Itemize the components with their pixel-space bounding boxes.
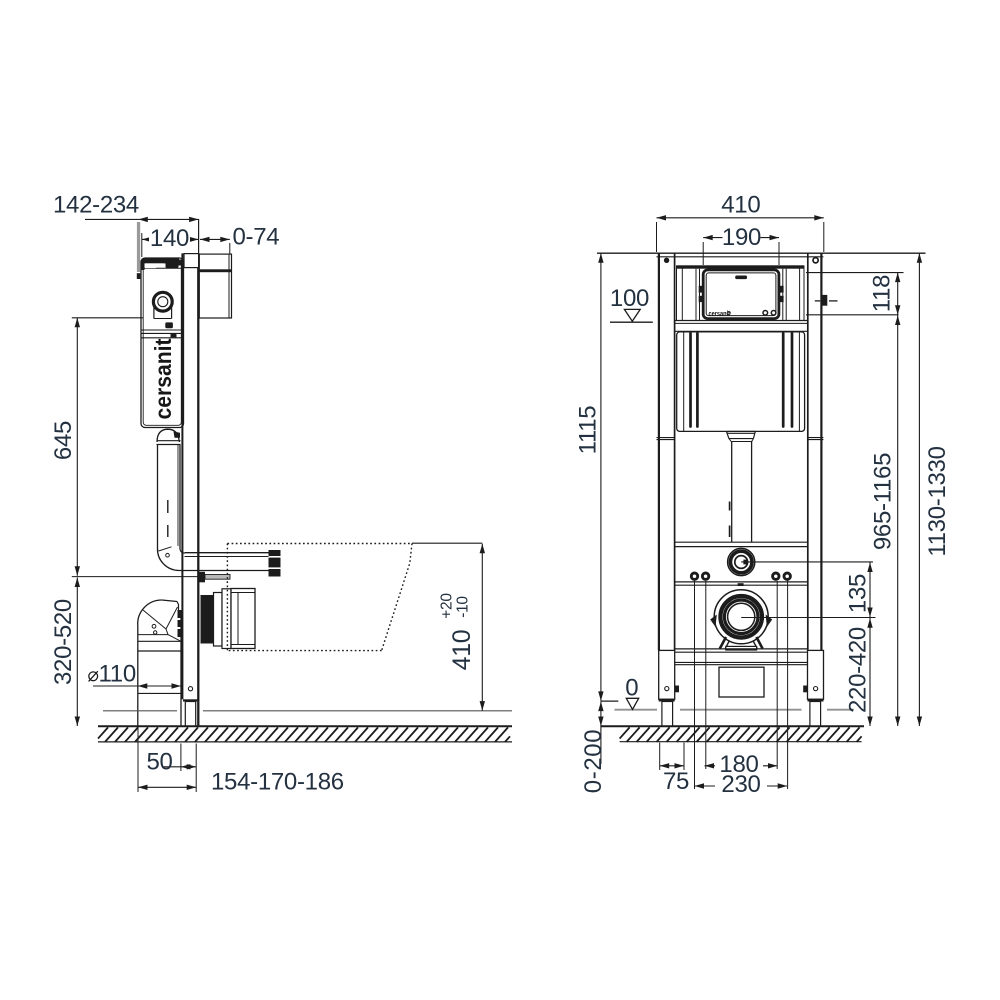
svg-text:135: 135 — [845, 574, 872, 613]
svg-text:110: 110 — [99, 661, 136, 688]
svg-text:0-74: 0-74 — [233, 223, 280, 250]
svg-text:1130-1330: 1130-1330 — [924, 446, 951, 556]
svg-text:-10: -10 — [455, 596, 472, 618]
svg-text:190: 190 — [722, 224, 761, 251]
svg-text:118: 118 — [869, 275, 896, 312]
svg-text:410: 410 — [721, 192, 760, 219]
svg-text:320-520: 320-520 — [50, 599, 77, 685]
svg-text:142-234: 142-234 — [53, 192, 139, 219]
svg-text:cersanit: cersanit — [150, 338, 176, 419]
svg-text:154-170-186: 154-170-186 — [211, 769, 344, 796]
svg-text:645: 645 — [50, 421, 77, 460]
svg-text:50: 50 — [147, 749, 173, 776]
svg-text:100: 100 — [610, 285, 649, 312]
svg-text:965-1165: 965-1165 — [870, 453, 897, 550]
svg-text:+20: +20 — [439, 593, 456, 619]
svg-text:75: 75 — [663, 768, 689, 795]
svg-text:220-420: 220-420 — [845, 627, 872, 713]
svg-text:0-200: 0-200 — [580, 729, 607, 793]
svg-text:1115: 1115 — [575, 406, 602, 455]
svg-text:140: 140 — [150, 225, 189, 252]
svg-text:230: 230 — [721, 771, 760, 798]
svg-text:0: 0 — [625, 675, 638, 702]
svg-text:410: 410 — [448, 630, 476, 671]
